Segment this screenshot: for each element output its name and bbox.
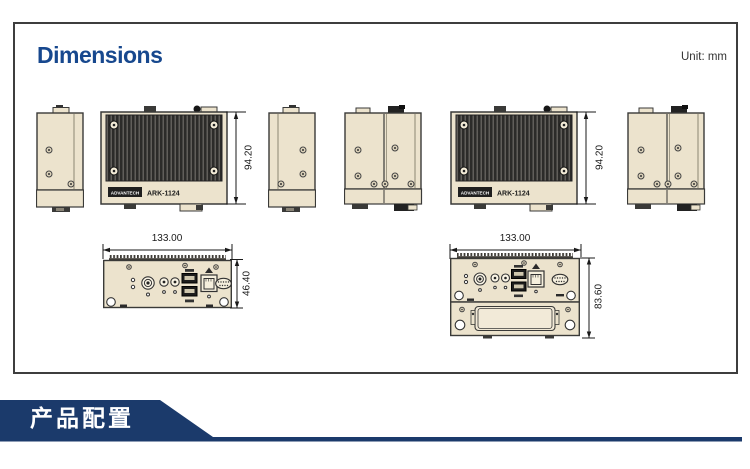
brand-text: ADVANTECH (461, 191, 490, 196)
expansion-plate (471, 307, 559, 331)
serial-port (216, 278, 232, 288)
fin-teeth (109, 255, 226, 258)
drawing-io-expansion-panel (450, 253, 580, 341)
heatsink (106, 115, 222, 181)
dim-label-front-height-right: 94.20 (595, 135, 606, 181)
unit-label: Unit: mm (681, 51, 727, 63)
drawing-side-view-left (36, 105, 84, 215)
dim-label-front-height-left: 94.20 (244, 135, 255, 181)
dim-label-expansion-height: 83.60 (594, 274, 605, 320)
drawing-io-panel (103, 255, 232, 313)
drawing-front-heatsink-left: ADVANTECH ARK-1124 (100, 104, 228, 214)
model-text: ARK-1124 (147, 191, 180, 198)
model-text: ARK-1124 (497, 191, 530, 198)
brand-text: ADVANTECH (111, 191, 140, 196)
drawing-top-view-1 (344, 105, 429, 215)
drawing-side-view-2 (268, 105, 316, 215)
fin-teeth (457, 253, 573, 256)
top-connector (144, 106, 156, 112)
dim-label-bottom-width-left: 133.00 (127, 233, 207, 244)
heatsink (456, 115, 572, 181)
dim-label-io-height: 46.40 (242, 261, 253, 307)
drawing-top-view-2 (627, 105, 712, 215)
footer-banner-label: 产品配置 (30, 400, 134, 437)
drawing-front-heatsink-right: ADVANTECH ARK-1124 (450, 104, 578, 214)
page-title: Dimensions (37, 42, 162, 69)
dim-label-bottom-width-right: 133.00 (475, 233, 555, 244)
